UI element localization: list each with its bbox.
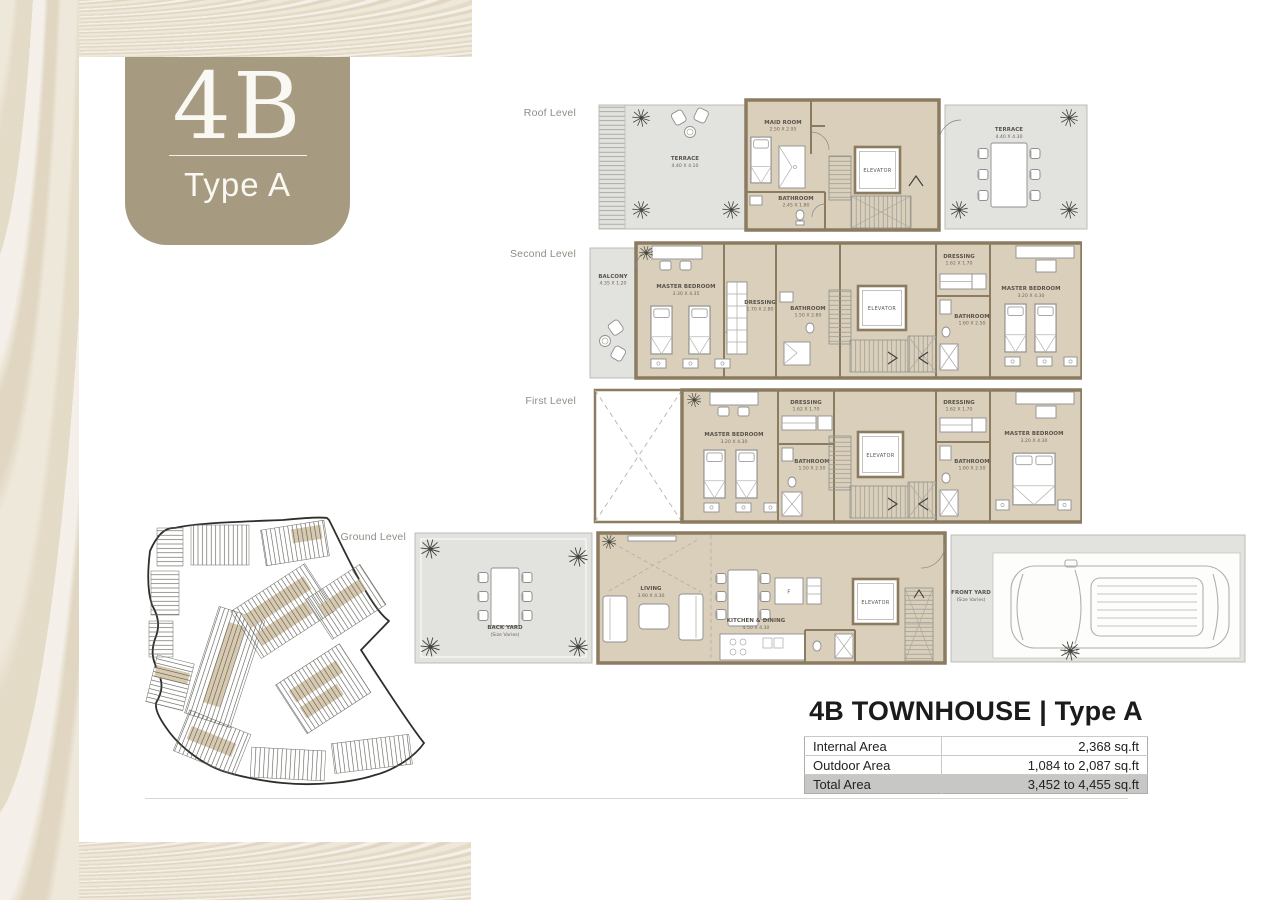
room-dims: 4.35 X 1.20	[599, 281, 626, 287]
kitchen-counter	[720, 634, 805, 660]
dresser-icon	[1016, 246, 1074, 258]
chair-icon	[1030, 191, 1040, 201]
second-level-plan: BALCONY 4.35 X 1.20 MASTER BEDROOM 3.30 …	[588, 240, 1082, 383]
back-yard: BACK YARD (Size Varies)	[415, 533, 592, 663]
dresser-icon	[1016, 392, 1074, 404]
room-label: MASTER BEDROOM	[656, 284, 715, 290]
sofa-icon	[679, 594, 703, 640]
first-unit: MASTER BEDROOM 3.20 X 4.30 DRESSING 1.62…	[682, 390, 1082, 522]
ground-level-plan: BACK YARD (Size Varies) LIVING 3.90 X 4.…	[411, 526, 1247, 668]
room-label: BATHROOM	[790, 306, 826, 312]
site-plan	[143, 511, 435, 803]
area-value: 2,368 sq.ft	[942, 737, 1148, 756]
balcony: BALCONY 4.35 X 1.20	[590, 248, 636, 378]
bed-icon	[1035, 304, 1056, 352]
room-label: BACK YARD	[487, 625, 523, 631]
table-row-outdoor-area: Outdoor Area 1,084 to 2,087 sq.ft	[805, 756, 1148, 775]
label-second-level: Second Level	[488, 248, 576, 260]
coffee-table-icon	[639, 604, 669, 629]
front-yard: FRONT YARD (Size Varies)	[951, 535, 1245, 662]
chair-icon	[716, 592, 726, 602]
room-dims: 3.90 X 4.30	[637, 593, 664, 599]
pergola-slats	[599, 105, 625, 229]
room-dims: 2.50 X 2.95	[769, 127, 796, 133]
room-dims: 3.20 X 4.30	[720, 439, 747, 445]
bed-icon	[651, 306, 672, 354]
roof-unit: MAID ROOM 2.50 X 2.95 BATHROOM 2.45 X 1.…	[746, 100, 939, 230]
stairs	[905, 588, 933, 661]
chair-icon	[760, 574, 770, 584]
room-label: MASTER BEDROOM	[1004, 431, 1063, 437]
room-label: BATHROOM	[954, 314, 990, 320]
area-label: Internal Area	[805, 737, 942, 756]
room-dims: 4.40 X 4.30	[995, 134, 1022, 140]
toilet-icon	[796, 210, 804, 220]
roof-terrace-left: TERRACE 4.40 X 4.10	[599, 105, 746, 229]
void-double-height	[595, 390, 682, 522]
room-dims: (Size Varies)	[956, 597, 985, 603]
room-label: MASTER BEDROOM	[1001, 286, 1060, 292]
room-label: DRESSING	[943, 400, 975, 406]
brochure-page: 4B Type A Roof Level Second Level First …	[0, 0, 1271, 900]
elevator-label: ELEVATOR	[866, 453, 895, 459]
room-label: BALCONY	[598, 274, 627, 280]
room-dims: 1.70 X 2.80	[746, 307, 773, 313]
chair-icon	[522, 573, 532, 583]
plan-title: 4B TOWNHOUSE | Type A	[793, 696, 1159, 727]
room-dims: 1.62 X 1.70	[945, 261, 972, 267]
area-label: Total Area	[805, 775, 942, 794]
chair-icon	[1030, 170, 1040, 180]
toilet-icon	[942, 473, 950, 483]
area-value: 3,452 to 4,455 sq.ft	[942, 775, 1148, 794]
round-table-icon	[600, 336, 611, 347]
room-dims: 1.62 X 1.70	[792, 407, 819, 413]
chair-icon	[978, 170, 988, 180]
bed-icon	[751, 137, 771, 183]
chair-icon	[716, 574, 726, 584]
sink-icon	[940, 446, 951, 460]
chair-icon	[478, 573, 488, 583]
label-roof-level: Roof Level	[492, 107, 576, 119]
marble-texture-bottom	[79, 842, 471, 900]
fridge-label: F	[787, 590, 790, 596]
chair-icon	[1030, 149, 1040, 159]
badge-code: 4B	[125, 61, 350, 153]
marble-texture-top	[79, 0, 472, 57]
desk-icon	[652, 246, 702, 259]
desk-icon	[710, 392, 758, 405]
ground-unit: LIVING 3.90 X 4.30 F KITCHE	[598, 533, 945, 663]
elevator: ELEVATOR	[858, 286, 906, 330]
room-dims: 1.62 X 1.70	[945, 407, 972, 413]
room-dims: 3.20 X 4.30	[1017, 293, 1044, 299]
elevator-label: ELEVATOR	[868, 306, 897, 312]
roof-terrace-right: TERRACE 4.40 X 4.30	[939, 105, 1087, 229]
sink-icon	[940, 300, 951, 314]
toilet-icon	[806, 323, 814, 333]
tv-icon	[628, 536, 676, 541]
chair-icon	[478, 611, 488, 621]
unit-type-badge: 4B Type A	[125, 57, 350, 245]
room-label: DRESSING	[744, 300, 776, 306]
bed-icon	[689, 306, 710, 354]
elevator-label: ELEVATOR	[863, 168, 892, 174]
sink-icon	[750, 196, 762, 205]
area-label: Outdoor Area	[805, 756, 942, 775]
room-label: TERRACE	[995, 127, 1023, 133]
footer-rule	[145, 798, 1128, 799]
toilet-icon	[788, 477, 796, 487]
sofa-icon	[603, 596, 627, 642]
chair-icon	[716, 610, 726, 620]
chair-icon	[978, 191, 988, 201]
bed-icon	[736, 450, 757, 498]
bed-icon	[704, 450, 725, 498]
first-level-plan: MASTER BEDROOM 3.20 X 4.30 DRESSING 1.62…	[588, 386, 1082, 528]
room-dims: 4.50 X 4.30	[742, 625, 769, 631]
table-row-total-area: Total Area 3,452 to 4,455 sq.ft	[805, 775, 1148, 794]
elevator: ELEVATOR	[858, 432, 903, 477]
toilet-icon	[813, 641, 821, 651]
room-dims: 4.40 X 4.10	[671, 163, 698, 169]
bed-icon	[1013, 453, 1055, 505]
room-dims: 2.45 X 1.80	[782, 203, 809, 209]
room-dims: 1.60 X 2.50	[958, 321, 985, 327]
room-label: DRESSING	[790, 400, 822, 406]
chair-icon	[522, 592, 532, 602]
room-dims: (Size Varies)	[490, 632, 519, 638]
pantry-icon	[807, 578, 821, 604]
room-dims: 3.20 X 4.30	[1020, 438, 1047, 444]
elevator: ELEVATOR	[855, 147, 900, 193]
table-row-internal-area: Internal Area 2,368 sq.ft	[805, 737, 1148, 756]
chair-icon	[760, 592, 770, 602]
chair-icon	[478, 592, 488, 602]
sink-icon	[782, 448, 793, 461]
room-label: BATHROOM	[954, 459, 990, 465]
room-dims: 1.50 X 2.80	[794, 313, 821, 319]
dining-table-icon	[991, 143, 1027, 207]
label-first-level: First Level	[492, 395, 576, 407]
dining-table-icon	[491, 568, 519, 626]
second-unit: MASTER BEDROOM 3.30 X 4.35 DRESSING 1.70…	[636, 243, 1082, 378]
toilet-icon	[942, 327, 950, 337]
round-table-icon	[685, 127, 696, 138]
room-dims: 1.50 X 2.50	[798, 466, 825, 472]
room-label: LIVING	[640, 586, 662, 592]
area-table: Internal Area 2,368 sq.ft Outdoor Area 1…	[804, 736, 1148, 794]
room-label: KITCHEN & DINING	[727, 618, 786, 624]
room-label: BATHROOM	[778, 196, 814, 202]
room-label: DRESSING	[943, 254, 975, 260]
bed-icon	[1005, 304, 1026, 352]
room-label: MASTER BEDROOM	[704, 432, 763, 438]
room-label: FRONT YARD	[951, 590, 991, 596]
elevator-label: ELEVATOR	[861, 600, 890, 606]
sink-icon	[780, 292, 793, 302]
room-dims: 1.60 X 2.50	[958, 466, 985, 472]
room-label: TERRACE	[671, 156, 699, 162]
chair-icon	[522, 611, 532, 621]
marble-texture-left	[0, 0, 79, 900]
room-label: BATHROOM	[794, 459, 830, 465]
elevator: ELEVATOR	[853, 579, 898, 624]
summary-block: 4B TOWNHOUSE | Type A Internal Area 2,36…	[793, 696, 1159, 794]
room-dims: 3.30 X 4.35	[672, 291, 699, 297]
room-label: MAID ROOM	[764, 120, 801, 126]
roof-level-plan: TERRACE 4.40 X 4.10 MAID ROOM 2.50 X 2.9…	[593, 96, 1093, 236]
badge-type-label: Type A	[125, 166, 350, 204]
chair-icon	[978, 149, 988, 159]
area-value: 1,084 to 2,087 sq.ft	[942, 756, 1148, 775]
